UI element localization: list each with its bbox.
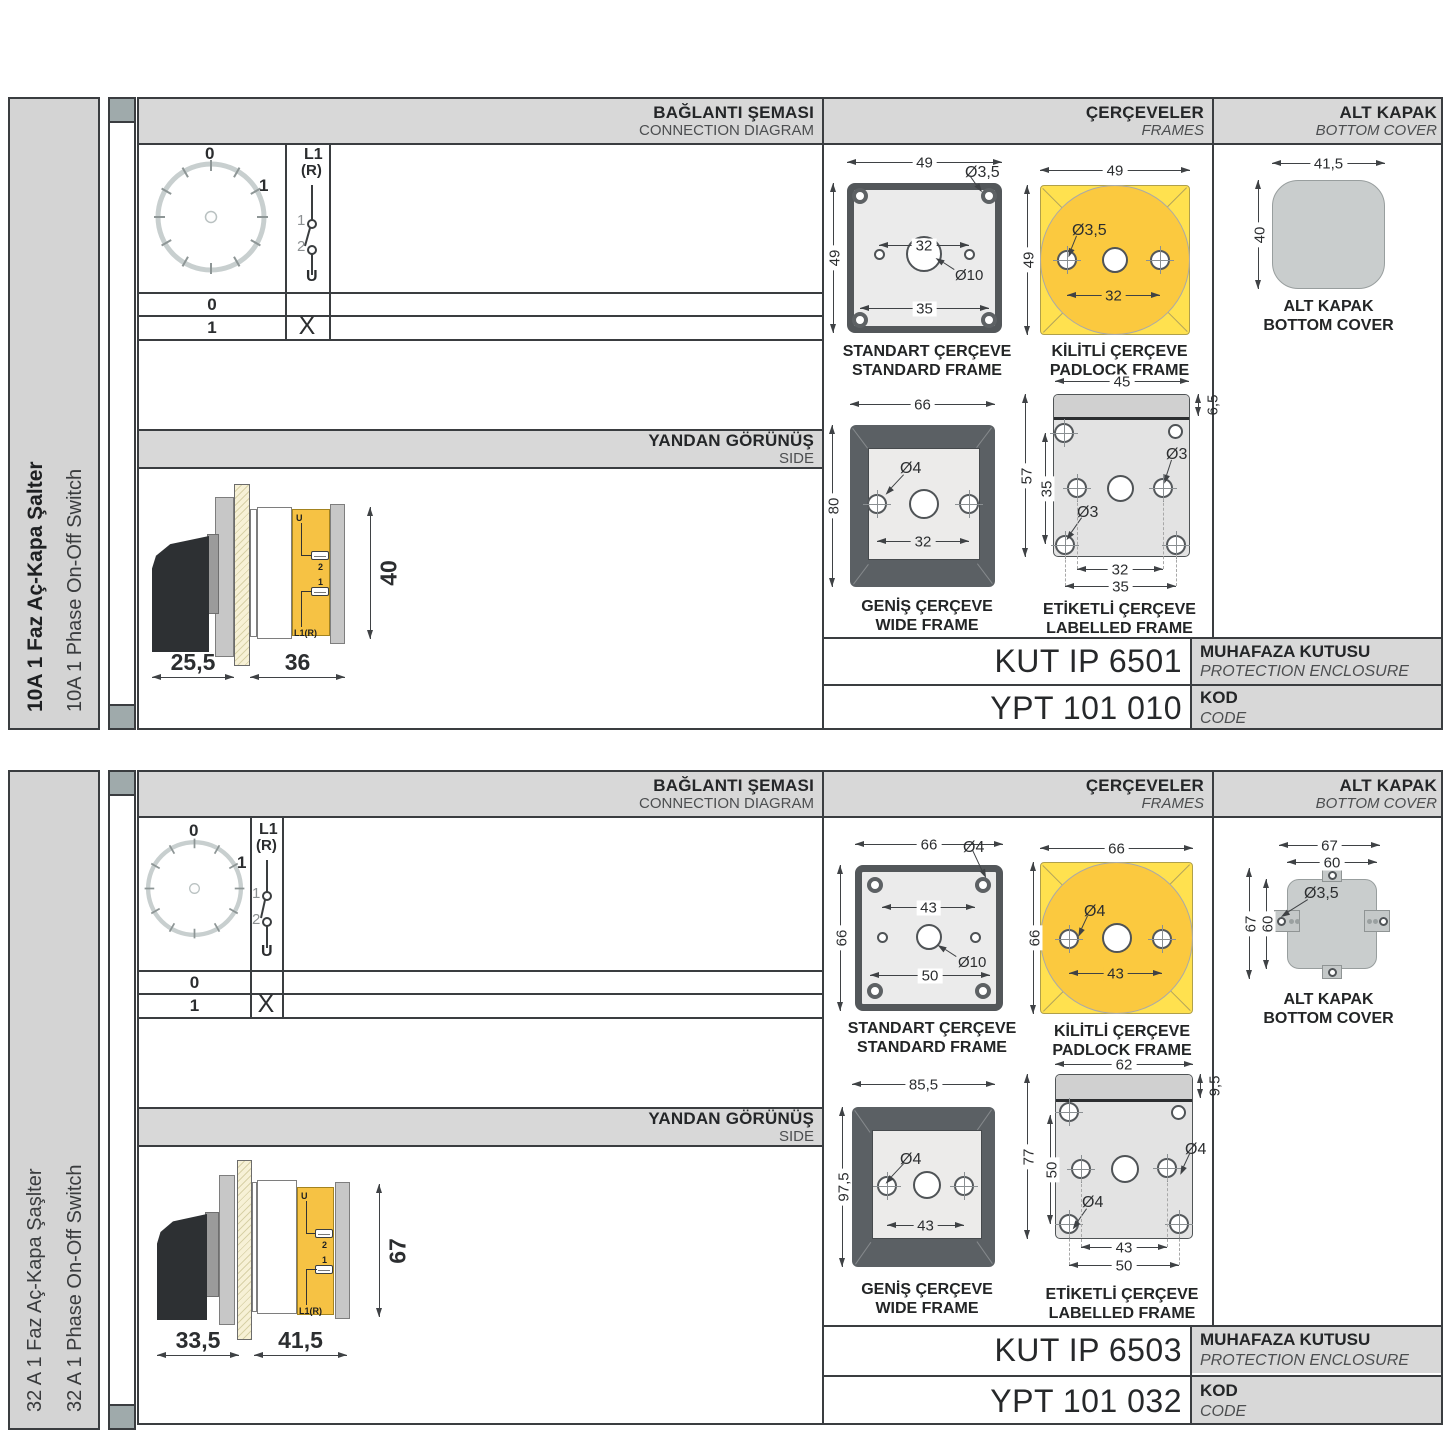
dim-height: 97,5: [842, 1107, 843, 1267]
terminal-lug-2: [315, 1229, 333, 1238]
sv-label-l1r: L1(R): [299, 1307, 322, 1316]
code-label: KOD CODE: [1192, 686, 1443, 730]
fixing-hole: [964, 249, 975, 260]
truth-row-1-mark: X: [250, 992, 282, 1017]
fixing-hole: [877, 932, 888, 943]
header-side-view: YANDAN GÖRÜNÜŞ SIDE: [139, 429, 822, 469]
header-frames: ÇERÇEVELER FRAMES: [822, 772, 1212, 818]
shaft-hole: [1102, 923, 1132, 953]
corner-hole-icon: [867, 877, 883, 893]
dim-width-outer: 67: [1279, 845, 1380, 846]
crosshair-hole-icon: [1150, 250, 1170, 270]
frames-panel: 49 Ø3,5 49 32 Ø10 35 STANDART ÇERÇEVE ST…: [822, 145, 1212, 639]
labelled-frame-drawing: 45 6,5 57 35 Ø3 Ø3 32 35 ETİKETLİ ÇERÇEV…: [1017, 380, 1222, 639]
corner-hole-icon: [867, 983, 883, 999]
header-cover-en: BOTTOM COVER: [1316, 795, 1437, 812]
truth-row-0-label: 0: [139, 972, 250, 993]
product-table: BAĞLANTI ŞEMASI CONNECTION DIAGRAM ÇERÇE…: [137, 97, 1443, 730]
col-line: [329, 145, 331, 341]
product-title-en: 10A 1 Phase On-Off Switch: [64, 99, 87, 728]
contact-1: 1: [252, 886, 260, 901]
caption: ETİKETLİ ÇERÇEVE LABELLED FRAME: [1017, 600, 1222, 638]
terminal-l1: L1: [304, 147, 323, 163]
dim-body-depth: 41,5: [254, 1355, 347, 1356]
header-bottom-cover: ALT KAPAK BOTTOM COVER: [1212, 772, 1443, 818]
rotary-dial-cell: 0 1: [139, 818, 250, 970]
switch-body-front: [257, 1180, 297, 1314]
sv-label-u: U: [301, 1192, 308, 1201]
dim-height: 49: [833, 183, 834, 333]
mounting-tab: [1322, 965, 1342, 979]
header-cover-tr: ALT KAPAK: [1340, 776, 1438, 796]
shaft-hole: [1107, 475, 1134, 502]
wire: [306, 1269, 307, 1305]
extension-line: [1081, 1179, 1082, 1247]
sv-label-1: 1: [322, 1256, 327, 1265]
product-title-en: 32 A 1 Phase On-Off Switch: [64, 772, 87, 1428]
wire: [301, 591, 312, 592]
rotary-dial-cell: 0 1: [139, 145, 285, 292]
enclosure-code: KUT IP 6501: [822, 639, 1190, 684]
crosshair-hole-icon: [867, 494, 887, 514]
bottom-cover-shape: [1272, 180, 1385, 289]
extension-line: [1176, 555, 1177, 586]
dim-hole: Ø3,5: [1304, 886, 1339, 902]
end-cap: [335, 1182, 350, 1319]
dim-handle-depth: 33,5: [157, 1355, 239, 1356]
enclosure-label: MUHAFAZA KUTUSU PROTECTION ENCLOSURE: [1192, 639, 1443, 684]
wide-frame-drawing: 85,5 97,5 Ø4 43 GENİŞ ÇERÇEVE WIDE FRAME: [827, 1073, 1027, 1325]
product-title-tr: 32 A 1 Faz Aç-Kapa Şaşlter: [24, 772, 47, 1428]
dim-inner: 43: [1081, 1247, 1167, 1248]
caption: STANDART ÇERÇEVE STANDARD FRAME: [827, 342, 1027, 380]
dial-position-0: 0: [205, 145, 214, 162]
terminal-u: U: [306, 269, 318, 285]
standard-frame-drawing: 66 Ø4 66 43 Ø10 50 STANDART ÇERÇEVE STAN…: [827, 828, 1037, 1063]
dial-position-1: 1: [237, 854, 246, 871]
padlock-frame-drawing: 66 66 Ø4 43 KİLİTLİ ÇERÇEVE PADLOCK FRAM…: [1022, 828, 1222, 1063]
dim-strip: 9,5: [1200, 1074, 1201, 1098]
wire: [306, 1201, 307, 1233]
tab-hole: [1379, 917, 1388, 926]
caption: ETİKETLİ ÇERÇEVE LABELLED FRAME: [1022, 1285, 1222, 1323]
tab-dot: [1289, 919, 1294, 924]
tab-hole: [1328, 968, 1337, 977]
crosshair-hole-icon: [1071, 1159, 1091, 1179]
label-strip: [1054, 395, 1189, 420]
product-table: BAĞLANTI ŞEMASI CONNECTION DIAGRAM ÇERÇE…: [137, 770, 1443, 1425]
header-frames-en: FRAMES: [1141, 122, 1204, 139]
dim-width: 41,5: [1272, 163, 1385, 164]
dim-body-height: 40: [370, 507, 371, 639]
dim-lower: 50: [870, 975, 990, 976]
header-side-en: SIDE: [779, 450, 814, 467]
extension-line: [1167, 1178, 1168, 1247]
row-line: [139, 1017, 822, 1019]
panel-hatch: [237, 1160, 252, 1340]
dim-body-depth: 36: [250, 677, 345, 678]
dim-height: 57: [1025, 394, 1026, 557]
dim-height: 77: [1027, 1074, 1028, 1239]
terminal-r: (R): [301, 163, 322, 178]
sv-label-2: 2: [318, 563, 323, 572]
header-connection-tr: BAĞLANTI ŞEMASI: [653, 776, 814, 796]
dim-width-inner: 60: [1287, 862, 1377, 863]
product-code: YPT 101 010: [822, 686, 1190, 730]
header-connection-diagram: BAĞLANTI ŞEMASI CONNECTION DIAGRAM: [139, 772, 822, 818]
dim-body-height: 67: [379, 1184, 380, 1317]
dim-hole: Ø3,5: [1072, 223, 1107, 239]
dim-hole: Ø3,5: [965, 165, 1000, 181]
sv-label-u: U: [296, 514, 303, 523]
dim-height: 80: [832, 425, 833, 587]
tab-dot: [1295, 919, 1300, 924]
header-cover-en: BOTTOM COVER: [1316, 122, 1437, 139]
contact-1: 1: [297, 213, 305, 228]
spine-column: [108, 97, 136, 730]
dim-height: 49: [1027, 185, 1028, 335]
contact-2: 2: [297, 239, 305, 254]
label-strip: [1056, 1075, 1192, 1102]
product-title-tr: 10A 1 Faz Aç-Kapa Şalter: [24, 99, 48, 728]
dim-lower: 50: [1069, 1265, 1179, 1266]
dim-inner: 43: [887, 1225, 964, 1226]
col-line: [282, 818, 284, 1019]
dim-hole: Ø3: [1166, 447, 1187, 463]
bottom-cover-panel: 67 60 67 60 Ø3,5 ALT KAPAK BOTTOM COVER: [1212, 818, 1443, 1078]
extension-line: [1069, 1234, 1070, 1265]
terminal-u: U: [261, 944, 273, 960]
contact-2: 2: [252, 912, 260, 927]
dim-handle-depth: 25,5: [152, 677, 234, 678]
rotary-dial-icon: [151, 157, 271, 277]
plain-hole: [1171, 1105, 1186, 1120]
switch-body-front: [257, 507, 292, 639]
tab-dot: [1367, 919, 1372, 924]
labelled-frame-drawing: 62 9,5 77 50 Ø4 Ø4 43 50 ETİKETLİ ÇERÇEV…: [1022, 1063, 1222, 1325]
header-frames-tr: ÇERÇEVELER: [1086, 103, 1204, 123]
corner-hole-icon: [852, 188, 868, 204]
standard-frame-drawing: 49 Ø3,5 49 32 Ø10 35 STANDART ÇERÇEVE ST…: [827, 155, 1027, 385]
dim-height-outer: 67: [1249, 868, 1250, 979]
caption: GENİŞ ÇERÇEVE WIDE FRAME: [827, 597, 1027, 635]
wide-frame-drawing: 66 80 Ø4 32 GENİŞ ÇERÇEVE WIDE FRAME: [827, 395, 1027, 639]
header-side-tr: YANDAN GÖRÜNÜŞ: [648, 431, 814, 451]
dial-position-1: 1: [259, 177, 268, 194]
panel-hatch: [234, 484, 250, 666]
wire: [301, 523, 302, 555]
handle-step: [205, 1212, 219, 1297]
product-section-10a: 10A 1 Faz Aç-Kapa Şalter 10A 1 Phase On-…: [8, 97, 1443, 730]
spine-square-bottom: [110, 1404, 134, 1428]
dim-inner: 32: [1077, 569, 1163, 570]
mounting-plate: [219, 1175, 235, 1325]
terminal-lug-1: [315, 1265, 333, 1274]
dim-height: 66: [1033, 862, 1034, 1014]
header-frames: ÇERÇEVELER FRAMES: [822, 99, 1212, 145]
side-view-drawing: U 2 1 L1(R) 40 25,5 36: [149, 471, 409, 716]
extension-line: [1065, 555, 1066, 586]
switch-body-terminals: [297, 1187, 334, 1315]
truth-row-0-label: 0: [139, 294, 285, 315]
dim-strip: 6,5: [1198, 394, 1199, 416]
dim-width: 85,5: [852, 1084, 995, 1085]
dim-width: 45: [1055, 381, 1189, 382]
dim-height-inner: 60: [1266, 879, 1267, 969]
caption: ALT KAPAK BOTTOM COVER: [1212, 990, 1443, 1028]
dim-height: 66: [840, 865, 841, 1011]
dim-inner-height: 50: [1050, 1115, 1051, 1224]
enclosure-label: MUHAFAZA KUTUSU PROTECTION ENCLOSURE: [1192, 1327, 1443, 1373]
end-cap: [330, 504, 345, 644]
extension-line: [1077, 498, 1078, 569]
fixing-hole: [874, 249, 885, 260]
dim-inner: 43: [1069, 973, 1162, 974]
side-view-drawing: U 2 1 L1(R) 67 33,5 41,5: [152, 1147, 417, 1392]
sidebar: 32 A 1 Faz Aç-Kapa Şaşlter 32 A 1 Phase …: [8, 770, 100, 1430]
crosshair-hole-icon: [959, 494, 979, 514]
dim-width: 66: [850, 404, 995, 405]
dim-center-hole: Ø10: [955, 268, 983, 283]
product-section-32a: 32 A 1 Faz Aç-Kapa Şaşlter 32 A 1 Phase …: [8, 770, 1443, 1437]
dim-width: 62: [1055, 1064, 1193, 1065]
header-frames-tr: ÇERÇEVELER: [1086, 776, 1204, 796]
dial-position-0: 0: [189, 822, 198, 839]
crosshair-hole-icon: [1054, 423, 1074, 443]
dim-inner-height: 35: [1045, 433, 1046, 544]
switch-handle: [152, 536, 209, 652]
dim-inner: 32: [1067, 295, 1160, 296]
header-connection-tr: BAĞLANTI ŞEMASI: [653, 103, 814, 123]
shaft-hole: [1111, 1155, 1139, 1183]
header-frames-en: FRAMES: [1141, 795, 1204, 812]
header-cover-tr: ALT KAPAK: [1340, 103, 1438, 123]
extension-line: [1163, 498, 1164, 569]
header-connection-en: CONNECTION DIAGRAM: [639, 122, 814, 139]
bottom-cover-panel: 41,5 40 ALT KAPAK BOTTOM COVER: [1212, 145, 1443, 445]
truth-row-1-mark: X: [285, 314, 329, 339]
sidebar: 10A 1 Faz Aç-Kapa Şalter 10A 1 Phase On-…: [8, 97, 100, 730]
rotary-dial-icon: [142, 836, 247, 941]
header-connection-en: CONNECTION DIAGRAM: [639, 795, 814, 812]
crosshair-hole-icon: [1157, 1158, 1177, 1178]
switch-symbol-cell: L1 (R) 1 2 U: [285, 145, 329, 292]
truth-row-1-label: 1: [139, 317, 285, 339]
dim-width: 66: [1040, 848, 1193, 849]
crosshair-hole-icon: [1166, 535, 1186, 555]
mounting-tab: [1364, 910, 1390, 932]
dim-inner: 43: [882, 907, 975, 908]
spacer: [250, 509, 257, 637]
caption: KİLİTLİ ÇERÇEVE PADLOCK FRAME: [1022, 1022, 1222, 1060]
dim-center-hole: Ø10: [958, 955, 986, 970]
tab-hole: [1328, 871, 1337, 880]
corner-hole-icon: [852, 312, 868, 328]
product-code: YPT 101 032: [822, 1377, 1190, 1425]
dim-width: 49: [1040, 170, 1190, 171]
crosshair-hole-icon: [1059, 1102, 1079, 1122]
header-side-tr: YANDAN GÖRÜNÜŞ: [648, 1109, 814, 1129]
truth-row-1-label: 1: [139, 995, 250, 1017]
dim-lower: 35: [860, 308, 989, 309]
spine-square-top: [110, 99, 134, 123]
enclosure-code: KUT IP 6503: [822, 1327, 1190, 1373]
tab-dot: [1373, 919, 1378, 924]
padlock-frame-drawing: 49 49 Ø3,5 32 KİLİTLİ ÇERÇEVE PADLOCK FR…: [1017, 155, 1222, 385]
corner-hole-icon: [975, 983, 991, 999]
crosshair-hole-icon: [1067, 478, 1087, 498]
crosshair-hole-icon: [954, 1176, 974, 1196]
dim-inner: 32: [879, 245, 969, 246]
extension-line: [1179, 1234, 1180, 1265]
header-bottom-cover: ALT KAPAK BOTTOM COVER: [1212, 99, 1443, 145]
code-label: KOD CODE: [1192, 1377, 1443, 1425]
catalog-page: 10A 1 Faz Aç-Kapa Şalter 10A 1 Phase On-…: [0, 0, 1445, 1445]
frames-panel: 66 Ø4 66 43 Ø10 50 STANDART ÇERÇEVE STAN…: [822, 818, 1212, 1325]
fixing-hole: [970, 932, 981, 943]
terminal-l1: L1: [259, 822, 278, 838]
sv-label-1: 1: [318, 578, 323, 587]
caption: STANDART ÇERÇEVE STANDARD FRAME: [827, 1019, 1037, 1057]
terminal-r: (R): [256, 838, 277, 853]
sv-label-l1r: L1(R): [294, 629, 317, 638]
row-line: [139, 339, 822, 341]
wire: [301, 591, 302, 627]
corner-hole-icon: [981, 312, 997, 328]
caption: GENİŞ ÇERÇEVE WIDE FRAME: [827, 1280, 1027, 1318]
dim-inner: 32: [877, 541, 969, 542]
spine-square-top: [110, 772, 134, 796]
switch-body-terminals: [292, 509, 330, 636]
dim-hole: Ø4: [900, 1152, 921, 1168]
dim-width: 49: [847, 162, 1002, 163]
sv-label-2: 2: [322, 1241, 327, 1250]
shaft-hole: [909, 489, 939, 519]
dim-height: 40: [1258, 180, 1259, 289]
terminal-lug-1: [311, 587, 329, 596]
wire: [306, 1269, 317, 1270]
crosshair-hole-icon: [1169, 1214, 1189, 1234]
spine-square-bottom: [110, 704, 134, 728]
header-side-en: SIDE: [779, 1128, 814, 1145]
terminal-lug-2: [311, 551, 329, 560]
shaft-hole: [1102, 247, 1128, 273]
plain-hole: [1168, 424, 1183, 439]
caption: ALT KAPAK BOTTOM COVER: [1212, 297, 1443, 335]
header-connection-diagram: BAĞLANTI ŞEMASI CONNECTION DIAGRAM: [139, 99, 822, 145]
spine-column: [108, 770, 136, 1430]
dim-lower: 35: [1065, 586, 1176, 587]
switch-handle: [157, 1214, 207, 1320]
shaft-hole: [913, 1171, 941, 1199]
crosshair-hole-icon: [1152, 929, 1172, 949]
header-side-view: YANDAN GÖRÜNÜŞ SIDE: [139, 1107, 822, 1147]
switch-symbol-cell: L1 (R) 1 2 U: [250, 818, 282, 970]
